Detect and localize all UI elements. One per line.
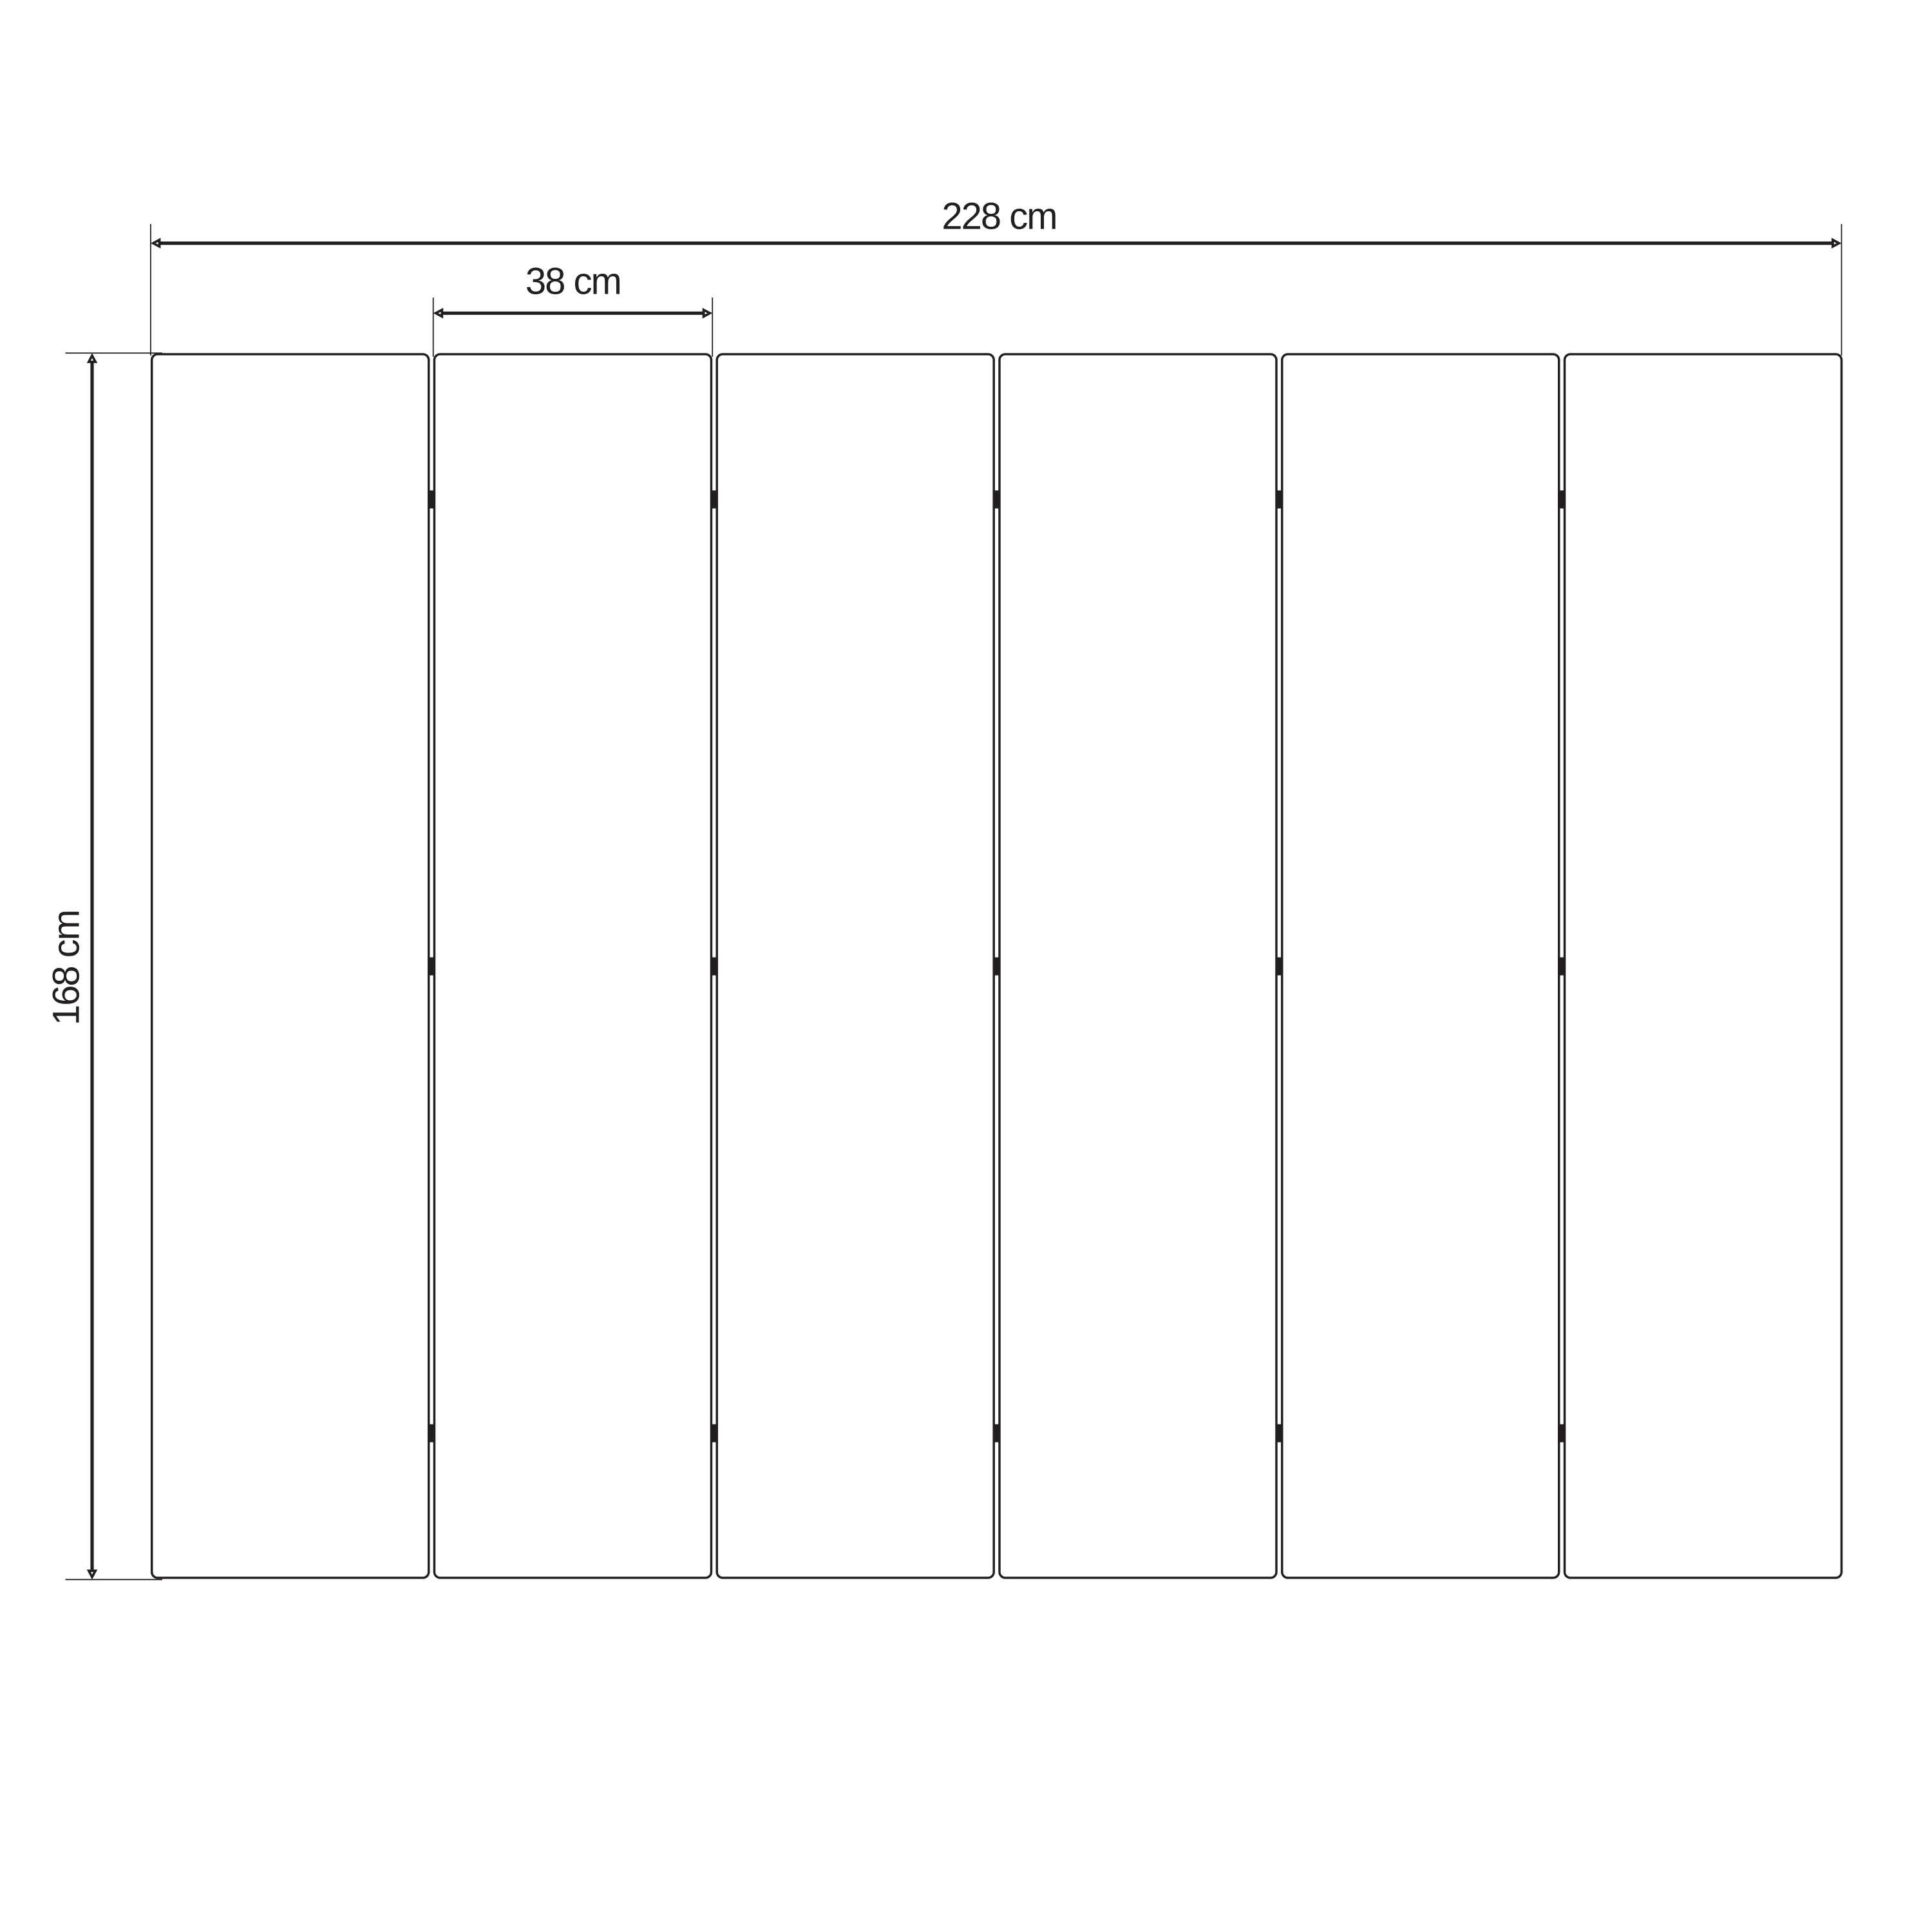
svg-text:38 cm: 38 cm xyxy=(526,260,621,302)
svg-text:168 cm: 168 cm xyxy=(45,911,87,1025)
svg-text:228 cm: 228 cm xyxy=(942,195,1056,237)
